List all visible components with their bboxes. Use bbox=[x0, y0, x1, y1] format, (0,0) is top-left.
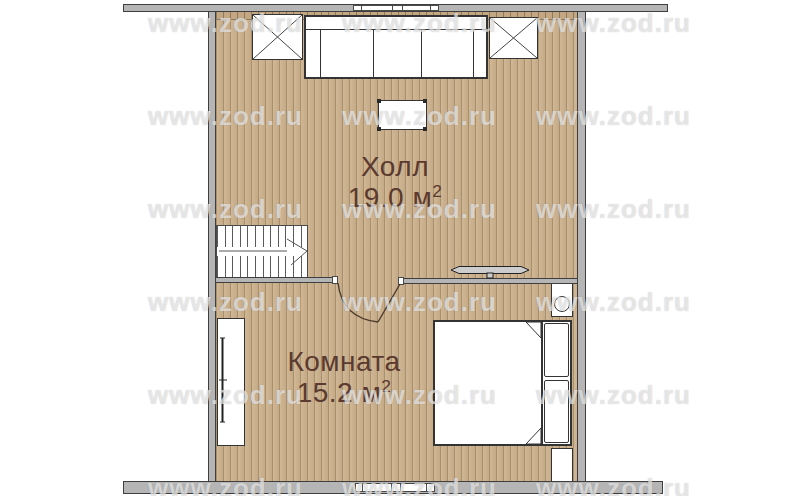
pillow bbox=[544, 380, 569, 443]
window-mullion bbox=[391, 484, 392, 491]
stair-flight-upper bbox=[217, 226, 307, 247]
window-bottom bbox=[355, 483, 435, 492]
side-table-right bbox=[489, 17, 538, 59]
room-name: Комната bbox=[254, 346, 434, 377]
window-mullion bbox=[402, 6, 403, 10]
floor-plan: Холл 19.0 м2 Комната 15.2 м2 www.zod.ruw… bbox=[0, 0, 795, 496]
hall-name: Холл bbox=[305, 151, 485, 182]
side-table-left bbox=[252, 14, 303, 60]
sofa-cushion bbox=[321, 30, 374, 77]
pillow bbox=[544, 323, 569, 377]
wall-top bbox=[123, 4, 668, 12]
sofa-armrest-left bbox=[306, 30, 321, 77]
coffee-table bbox=[378, 100, 427, 130]
bed-head-divider bbox=[541, 322, 543, 444]
door-jamb bbox=[332, 276, 338, 284]
room-area: 15.2 м2 bbox=[254, 377, 434, 408]
bed bbox=[433, 320, 572, 446]
cross-mark-icon bbox=[253, 15, 302, 59]
door-jamb bbox=[398, 277, 404, 285]
window-top bbox=[353, 5, 439, 11]
staircase bbox=[216, 225, 308, 278]
sofa-cushion bbox=[374, 30, 422, 77]
stair-flight-lower bbox=[217, 256, 307, 277]
window-mullion bbox=[361, 6, 362, 10]
sofa-armrest-right bbox=[473, 30, 486, 77]
nightstand-bottom bbox=[551, 448, 573, 482]
window-mullion bbox=[400, 484, 401, 491]
room-label: Комната 15.2 м2 bbox=[254, 346, 434, 408]
interior-wall-right bbox=[400, 278, 578, 284]
cross-mark-icon bbox=[490, 18, 537, 58]
sofa-backrest bbox=[306, 17, 486, 30]
window-mullion bbox=[362, 484, 363, 491]
window-mullion bbox=[430, 6, 431, 10]
sofa bbox=[304, 15, 488, 79]
hall-label: Холл 19.0 м2 bbox=[305, 151, 485, 213]
window-mullion bbox=[392, 6, 393, 10]
wardrobe bbox=[217, 318, 245, 446]
interior-wall-left bbox=[208, 277, 334, 283]
window-mullion bbox=[426, 484, 427, 491]
nightstand-top bbox=[551, 283, 573, 317]
lamp-icon bbox=[554, 296, 570, 312]
wall-left bbox=[208, 11, 216, 482]
hall-area: 19.0 м2 bbox=[305, 182, 485, 213]
wall-right bbox=[577, 11, 586, 482]
wall-bottom bbox=[123, 481, 663, 494]
